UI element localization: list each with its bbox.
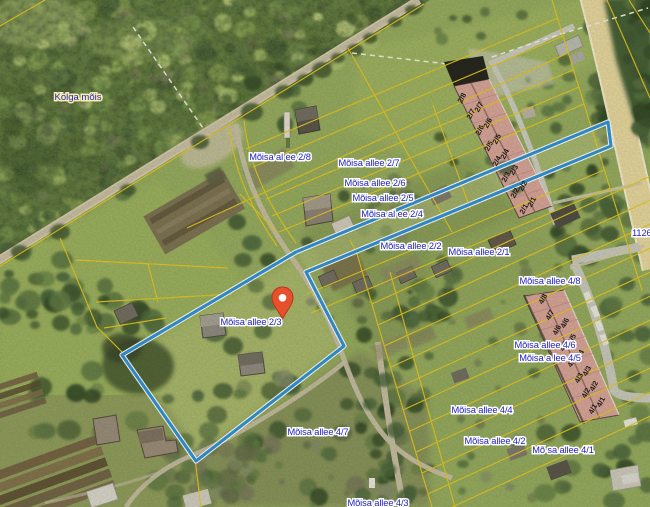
svg-text:11268: 11268 (632, 228, 650, 238)
svg-text:Mõisa allee 2/3: Mõisa allee 2/3 (220, 317, 281, 327)
svg-text:Mõisa a lee 4/5: Mõisa a lee 4/5 (519, 353, 581, 363)
svg-text:Mõisa allee 4/7: Mõisa allee 4/7 (287, 427, 348, 437)
svg-text:Mõisa al ee 2/8: Mõisa al ee 2/8 (249, 152, 311, 162)
svg-text:Mõisa allee 2/1: Mõisa allee 2/1 (448, 247, 509, 257)
svg-text:Mõisa allee 2/5: Mõisa allee 2/5 (352, 193, 413, 203)
svg-text:Mõisa allee 4/3: Mõisa allee 4/3 (347, 498, 408, 507)
svg-text:Mõisa al ee 2/4: Mõisa al ee 2/4 (361, 209, 423, 219)
svg-text:Mõisa allee 4/8: Mõisa allee 4/8 (519, 276, 580, 286)
svg-text:Mõisa allee 4/2: Mõisa allee 4/2 (464, 436, 525, 446)
svg-text:Mõisa allee 2/7: Mõisa allee 2/7 (338, 158, 399, 168)
svg-text:Mõisa allee 4/6: Mõisa allee 4/6 (514, 340, 575, 350)
svg-text:Mõisa allee 2/2: Mõisa allee 2/2 (380, 241, 441, 251)
svg-text:Mõisa allee 2/6: Mõisa allee 2/6 (344, 178, 405, 188)
svg-text:Mõisa allee 4/4: Mõisa allee 4/4 (451, 405, 512, 415)
svg-text:Mõ sa allee 4/1: Mõ sa allee 4/1 (532, 445, 594, 455)
svg-text:Kolga mõis: Kolga mõis (55, 92, 102, 103)
